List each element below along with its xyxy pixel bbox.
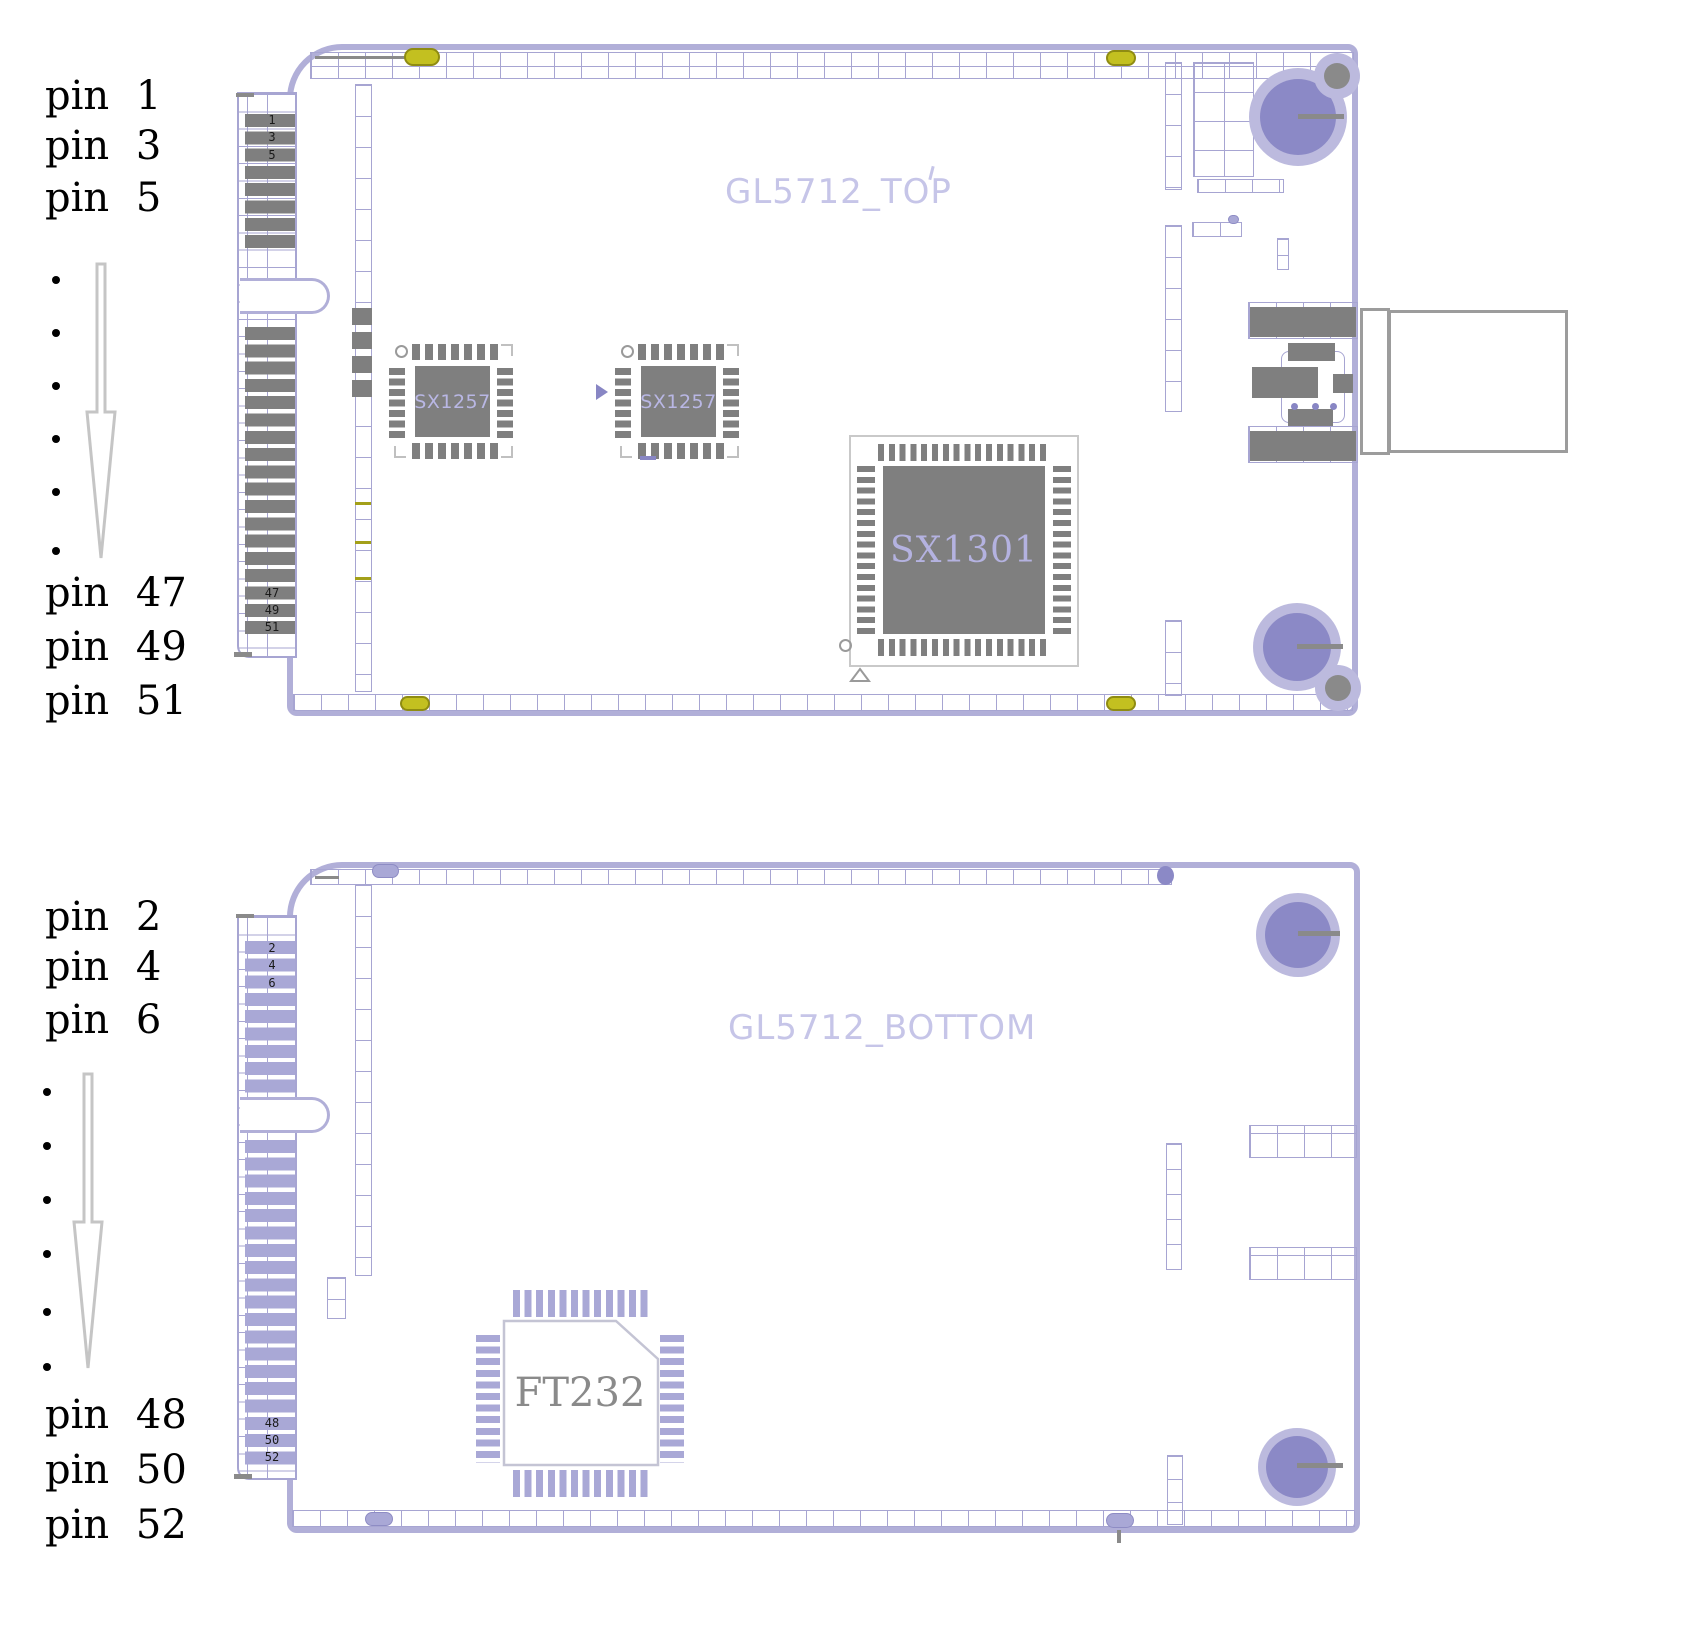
trace-mark bbox=[1117, 1530, 1121, 1543]
trace-mark bbox=[236, 914, 254, 918]
pad-number: 2 bbox=[250, 942, 294, 955]
grid-line bbox=[1250, 1255, 1356, 1256]
fiducial-purple bbox=[365, 1512, 393, 1526]
pad-number: 50 bbox=[250, 1434, 294, 1447]
grid-line bbox=[1250, 1133, 1356, 1134]
fiducial-purple bbox=[1106, 1513, 1134, 1528]
pad-number: 4 bbox=[250, 959, 294, 972]
component-strip bbox=[355, 884, 372, 1276]
hole-needle bbox=[1298, 931, 1340, 936]
chip-pads-top bbox=[513, 1290, 649, 1317]
chip-pads-right bbox=[660, 1335, 684, 1463]
component-grid-block bbox=[1249, 1247, 1357, 1280]
board-outline-bottom bbox=[287, 862, 1360, 1533]
pcb-assembly-diagram: pin 1 pin 3 pin 5 pin 47 pin 49 pin 51 bbox=[0, 0, 1706, 1652]
pad-number: 48 bbox=[250, 1417, 294, 1430]
connector-notch bbox=[240, 1097, 330, 1133]
pad-number: 6 bbox=[250, 977, 294, 990]
chip-ft232: FT232 bbox=[468, 1286, 692, 1502]
bottom-board: 2 4 6 48 50 52 FT232 bbox=[0, 0, 1706, 1652]
edge-grid-bottom bbox=[292, 1510, 1355, 1527]
component-strip bbox=[1166, 1143, 1182, 1270]
chip-label: FT232 bbox=[504, 1322, 656, 1464]
chip-pads-bottom bbox=[513, 1470, 649, 1497]
fiducial-purple bbox=[372, 864, 399, 878]
component-grid-block bbox=[1249, 1125, 1357, 1158]
pad-number: 52 bbox=[250, 1451, 294, 1464]
chip-pads-left bbox=[476, 1335, 500, 1463]
component-strip bbox=[327, 1277, 346, 1319]
trace-mark bbox=[234, 1474, 252, 1479]
hole-needle bbox=[1297, 1463, 1343, 1468]
edge-grid-top bbox=[310, 869, 1172, 885]
trace-mark bbox=[315, 876, 339, 879]
board-title-silkscreen: GL5712_BOTTOM bbox=[728, 1008, 1036, 1048]
via-mark bbox=[1157, 866, 1174, 885]
